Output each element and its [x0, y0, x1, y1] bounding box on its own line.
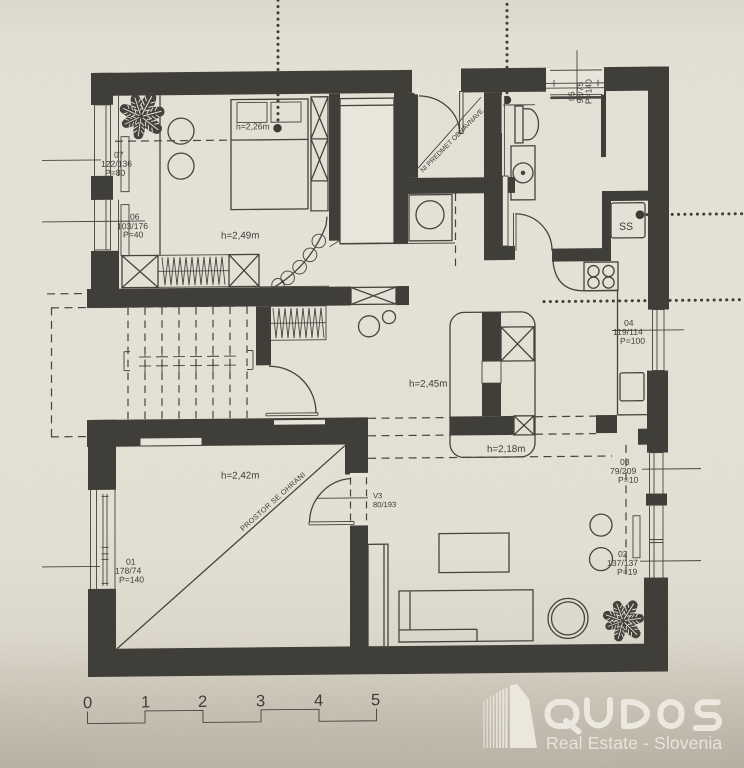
svg-text:4: 4 [314, 692, 323, 710]
svg-text:P=19: P=19 [617, 567, 638, 577]
svg-text:h=2,18m: h=2,18m [487, 444, 525, 455]
svg-text:P=40: P=40 [123, 229, 144, 239]
svg-text:V3: V3 [373, 491, 382, 500]
svg-text:h=2,26m: h=2,26m [236, 121, 270, 131]
svg-text:NI PREDMET OBNAVNAVE: NI PREDMET OBNAVNAVE [419, 108, 485, 175]
svg-text:Real Estate - Slovenia: Real Estate - Slovenia [546, 733, 722, 753]
svg-text:P=140: P=140 [584, 79, 594, 104]
svg-text:SS: SS [619, 221, 633, 233]
svg-text:1: 1 [141, 693, 150, 711]
svg-text:P=80: P=80 [105, 168, 126, 178]
svg-text:h=2,42m: h=2,42m [221, 470, 259, 481]
svg-text:80/193: 80/193 [373, 500, 396, 509]
svg-text:3: 3 [256, 692, 265, 710]
svg-text:2: 2 [198, 693, 207, 711]
svg-text:P=140: P=140 [119, 574, 144, 584]
svg-text:P=10: P=10 [618, 475, 639, 485]
svg-text:h=2,45m: h=2,45m [409, 379, 447, 390]
svg-text:5: 5 [371, 691, 380, 709]
svg-text:h=2,49m: h=2,49m [221, 230, 259, 241]
svg-text:P=100: P=100 [620, 336, 645, 346]
svg-text:0: 0 [83, 694, 92, 712]
